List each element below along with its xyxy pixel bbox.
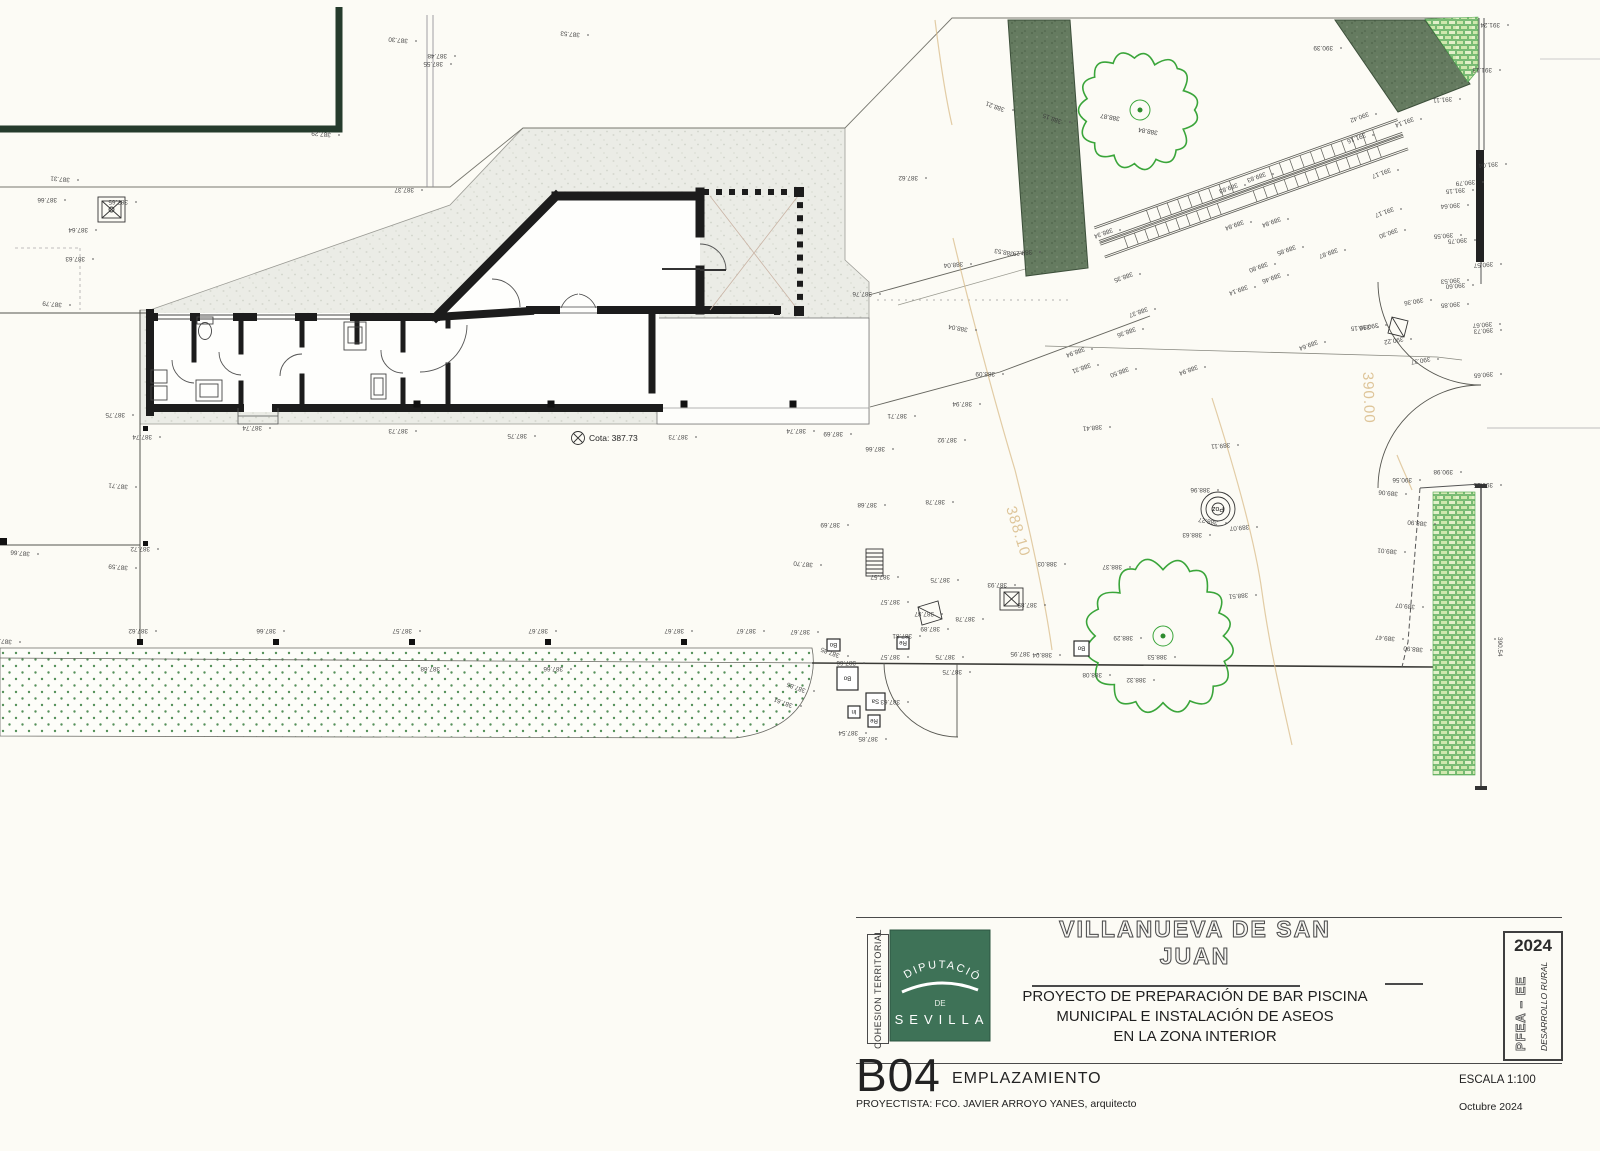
project-title-line3: EN LA ZONA INTERIOR bbox=[1020, 1028, 1370, 1045]
elevation-label: 387.66 bbox=[37, 196, 57, 203]
elevation-label: 387.63 bbox=[880, 698, 900, 705]
contour-elevation-label: 390.00 bbox=[1359, 372, 1378, 424]
elevation-label: 388.04 bbox=[1032, 651, 1052, 658]
column-post bbox=[414, 401, 421, 408]
marker-box-label: In bbox=[851, 708, 856, 714]
elevation-label: 390.54 bbox=[1496, 637, 1503, 657]
utility-marker-box: Re bbox=[868, 715, 880, 727]
author-line: PROYECTISTA: FCO. JAVIER ARROYO YANES, a… bbox=[856, 1098, 1136, 1110]
elevation-label: 387.89 bbox=[920, 625, 940, 632]
date-label: Octubre 2024 bbox=[1459, 1101, 1523, 1113]
marker-box-label: Bo bbox=[1077, 645, 1085, 651]
elevation-label: 387.85 bbox=[858, 735, 878, 742]
scale-label: ESCALA 1:100 bbox=[1459, 1074, 1536, 1086]
marker-box-label: Sa bbox=[871, 698, 879, 704]
elevation-label: 387.68 bbox=[857, 501, 877, 508]
elevation-label: 387.57 bbox=[870, 573, 890, 580]
stamp-year: 2024 bbox=[1505, 936, 1561, 956]
elevation-label: 387.64 bbox=[68, 226, 88, 233]
elevation-label: 387.73 bbox=[668, 433, 688, 440]
elevation-label: 387.66 bbox=[836, 659, 856, 666]
column-post bbox=[790, 401, 797, 408]
elevation-label: 387.48 bbox=[427, 52, 447, 59]
elevation-label: 387.75 bbox=[507, 432, 527, 439]
hedge-strip-east bbox=[1433, 492, 1475, 775]
well-label: Poz bbox=[1211, 505, 1224, 512]
marker-box-label: Bo bbox=[843, 675, 851, 681]
elevation-label: 387.66 bbox=[543, 665, 563, 672]
logo-de-text: DE bbox=[934, 999, 945, 1008]
elevation-label: 387.75 bbox=[105, 411, 125, 418]
elevation-label: 387.87 bbox=[914, 610, 934, 617]
title-underline-dash bbox=[1385, 983, 1423, 985]
marker-box-label: Bo bbox=[829, 641, 837, 647]
elevation-label: 387.75 bbox=[935, 653, 955, 660]
elevation-label: 388.08 bbox=[1082, 671, 1102, 678]
elevation-label: 387.72 bbox=[130, 545, 150, 552]
elevation-label: 387.66 bbox=[256, 627, 276, 634]
elevation-label: 387.62 bbox=[898, 174, 918, 181]
cohesion-territorial-label: COHESION TERRITORIAL bbox=[873, 929, 883, 1049]
elevation-label: 388.37 bbox=[1102, 563, 1122, 570]
elevation-label: 387.75 bbox=[942, 668, 962, 675]
elevation-label: 387.78 bbox=[925, 498, 945, 505]
scanned-site-plan-page: PozBoReBoSaInReBo388.10390.00Cota: 387.7… bbox=[0, 0, 1600, 1151]
elevation-label: 387.85 bbox=[1017, 601, 1037, 608]
elevation-label: 387.37 bbox=[394, 186, 414, 193]
utility-marker-box: In bbox=[848, 706, 860, 718]
sheet-name: EMPLAZAMIENTO bbox=[952, 1070, 1102, 1088]
elevation-label: 388.32 bbox=[1126, 676, 1146, 683]
elevation-label: 387.78 bbox=[955, 615, 975, 622]
elevation-label: 387.54 bbox=[838, 729, 858, 736]
sheet-code: B04 bbox=[856, 1048, 941, 1102]
elevation-label: 387.95 bbox=[1010, 650, 1030, 657]
elevation-label: 391.13 bbox=[1472, 66, 1492, 73]
elevation-label: 387.67 bbox=[528, 627, 548, 634]
elevation-label: 387.76 bbox=[852, 290, 872, 297]
title-underline bbox=[1032, 985, 1300, 987]
column-post bbox=[548, 401, 555, 408]
stamp-program: PFEA – EE bbox=[1513, 976, 1528, 1051]
elevation-label: 387.66 bbox=[865, 445, 885, 452]
elevation-label: 388.96 bbox=[1190, 486, 1210, 493]
cota-label: Cota: 387.73 bbox=[589, 433, 638, 443]
fence-post bbox=[545, 639, 551, 645]
gate-post bbox=[1475, 786, 1487, 790]
fence-post bbox=[409, 639, 415, 645]
fence-post bbox=[137, 639, 143, 645]
elevation-label: 387.62 bbox=[128, 627, 148, 634]
elevation-label: 390.56 bbox=[1392, 476, 1412, 483]
elevation-label: 387.57 bbox=[880, 653, 900, 660]
stamp-subprogram: DESARROLLO RURAL bbox=[1539, 962, 1549, 1051]
elevation-label: 387.93 bbox=[987, 581, 1007, 588]
utility-marker-box: Bo bbox=[837, 667, 858, 690]
elevation-label: 388.29 bbox=[1113, 634, 1133, 641]
elevation-label: 387.69 bbox=[823, 430, 843, 437]
utility-marker-box: Bo bbox=[1074, 641, 1089, 656]
project-title-line2: MUNICIPAL E INSTALACIÓN DE ASEOS bbox=[1020, 1008, 1370, 1025]
logo-sevilla-text: SEVILLA bbox=[895, 1012, 990, 1027]
elevation-label: 387.94 bbox=[952, 400, 972, 407]
elevation-label: 387.75 bbox=[930, 576, 950, 583]
project-title-line1: PROYECTO DE PREPARACIÓN DE BAR PISCINA bbox=[1020, 988, 1370, 1005]
elevation-label: 387.67 bbox=[790, 628, 810, 635]
site-plan-drawing: PozBoReBoSaInReBo388.10390.00Cota: 387.7… bbox=[0, 0, 1600, 1151]
elevation-label: 387.74 bbox=[242, 424, 262, 431]
marker-box-label: Re bbox=[870, 717, 878, 723]
elevation-label: 387.68 bbox=[420, 665, 440, 672]
elevation-label: 387.69 bbox=[820, 521, 840, 528]
elevation-label: 387.67 bbox=[664, 627, 684, 634]
elevation-label: 387.63 bbox=[65, 255, 85, 262]
fence-post bbox=[273, 639, 279, 645]
elevation-label: 387.71 bbox=[887, 412, 907, 419]
elevation-label: 387.55 bbox=[423, 60, 443, 67]
cohesion-territorial-box: COHESION TERRITORIAL bbox=[867, 934, 889, 1044]
elevation-label: 387.74 bbox=[132, 433, 152, 440]
elevation-label: 388.03 bbox=[1037, 560, 1057, 567]
fence-post bbox=[681, 639, 687, 645]
elevation-label: 387.57 bbox=[880, 598, 900, 605]
column-post bbox=[681, 401, 688, 408]
elevation-label: 388.53 bbox=[1147, 653, 1167, 660]
elevation-label: 387.92 bbox=[937, 436, 957, 443]
municipality-title: VILLANUEVA DE SAN JUAN bbox=[1020, 916, 1370, 970]
elevation-label: 388.63 bbox=[1182, 531, 1202, 538]
elevation-label: 390.98 bbox=[1433, 468, 1453, 475]
elevation-label: 390.39 bbox=[1313, 44, 1333, 51]
elevation-label: 387.74 bbox=[786, 427, 806, 434]
elevation-label: 390.55 bbox=[1473, 481, 1493, 488]
elevation-label: 387.73 bbox=[388, 427, 408, 434]
elevation-label: 388.09 bbox=[975, 370, 995, 377]
diputacion-sevilla-logo: DIPUTACIÓN DE SEVILLA bbox=[889, 929, 991, 1042]
elevation-label: 387.57 bbox=[392, 627, 412, 634]
grass-area bbox=[0, 648, 813, 738]
elevation-label: 391.24 bbox=[1480, 21, 1500, 28]
elevation-label: 387.81 bbox=[892, 632, 912, 639]
elevation-label: 387.67 bbox=[736, 627, 756, 634]
pfea-stamp-box: 2024 PFEA – EE DESARROLLO RURAL bbox=[1503, 931, 1563, 1061]
elevation-label: 387.65 bbox=[108, 198, 128, 205]
titleblock-mid-rule bbox=[856, 1063, 1562, 1064]
